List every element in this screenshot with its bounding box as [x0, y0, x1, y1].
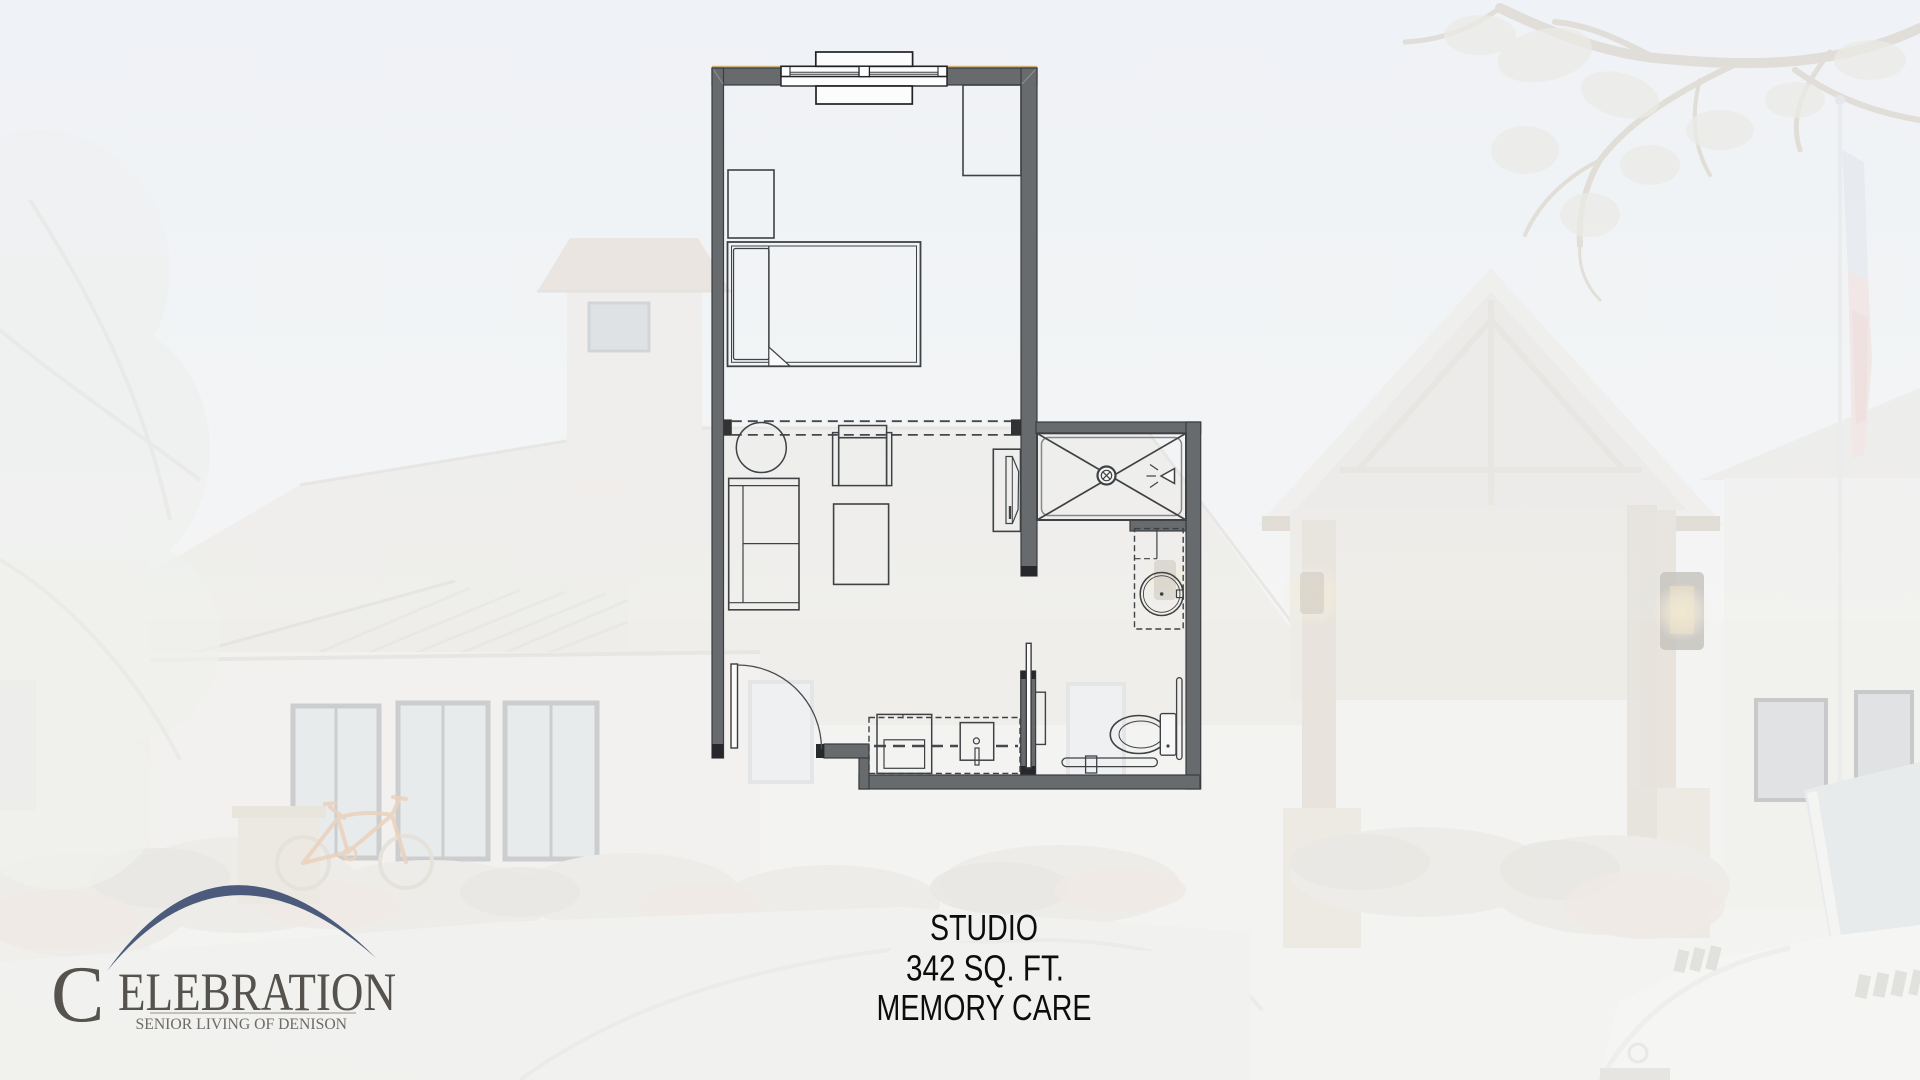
svg-text:C: C	[51, 951, 104, 1039]
svg-text:STUDIO: STUDIO	[930, 907, 1038, 948]
svg-text:MEMORY CARE: MEMORY CARE	[877, 987, 1092, 1028]
svg-text:SENIOR LIVING OF DENISON: SENIOR LIVING OF DENISON	[136, 1016, 348, 1033]
svg-text:342 SQ. FT.: 342 SQ. FT.	[906, 948, 1064, 989]
